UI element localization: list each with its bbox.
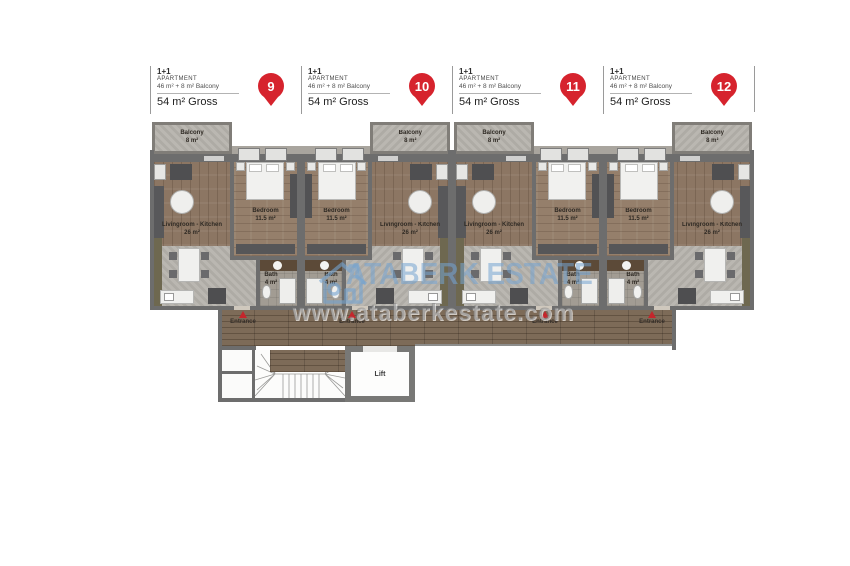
wall: [301, 154, 305, 310]
nightstand: [307, 162, 316, 171]
lift-label: Lift: [375, 371, 386, 378]
window: [342, 148, 364, 161]
window: [540, 148, 562, 161]
kitchen-sink: [730, 293, 740, 301]
chair: [727, 252, 735, 260]
wall: [750, 150, 754, 310]
window: [238, 148, 260, 161]
pillow: [266, 164, 279, 172]
nightstand: [286, 162, 295, 171]
entrance-label-12: Entrance: [632, 311, 672, 325]
wall: [415, 344, 672, 346]
balcony: Balcony 8 m²: [370, 122, 450, 154]
tv-unit: [236, 244, 295, 254]
pillow: [625, 164, 638, 172]
lift-door: [363, 346, 397, 352]
balcony: Balcony 8 m²: [152, 122, 232, 154]
wall: [222, 371, 252, 374]
window: [265, 148, 287, 161]
entrance-label-9: Entrance: [223, 311, 263, 325]
chair: [695, 270, 703, 278]
coffee-table: [408, 190, 432, 214]
balcony: Balcony 8 m²: [454, 122, 534, 154]
nightstand: [538, 162, 547, 171]
chair: [201, 270, 209, 278]
bathroom-label: Bath 4 m²: [256, 272, 286, 288]
washbasin: [622, 261, 631, 270]
entrance-text: Entrance: [223, 319, 263, 325]
pillow: [249, 164, 262, 172]
floor-plan-page: 1+1 APARTMENT 46 m² + 8 m² Balcony 54 m²…: [0, 0, 850, 566]
window: [315, 148, 337, 161]
balcony-label: Balcony 8 m²: [398, 130, 421, 146]
bedroom-label: Bedroom 11.5 m²: [536, 208, 599, 224]
stair-landing: [270, 350, 345, 372]
nightstand: [236, 162, 245, 171]
coffee-table: [710, 190, 734, 214]
entrance-text: Entrance: [632, 319, 672, 325]
tv-unit: [538, 244, 597, 254]
nightstand: [588, 162, 597, 171]
shaft-room: [222, 350, 252, 398]
balcony: Balcony 8 m²: [672, 122, 752, 154]
coffee-table: [472, 190, 496, 214]
chair: [169, 270, 177, 278]
tv-unit: [307, 244, 366, 254]
chair: [169, 252, 177, 260]
washbasin: [273, 261, 282, 270]
chair: [695, 252, 703, 260]
armchair: [410, 164, 432, 180]
window: [644, 148, 666, 161]
window: [567, 148, 589, 161]
wall: [603, 154, 607, 310]
chair: [201, 252, 209, 260]
balcony-door: [378, 156, 398, 161]
watermark-url: www.ataberkestate.com: [292, 299, 574, 326]
chair: [727, 270, 735, 278]
bedroom-label: Bedroom 11.5 m²: [305, 208, 368, 224]
bathroom-label: Bath 4 m²: [618, 272, 648, 288]
apartment-unit-12: Balcony 8 m²: [603, 120, 754, 310]
cabinet: [738, 164, 750, 180]
dining-table: [178, 248, 200, 282]
pillow: [323, 164, 336, 172]
living-room-label: Livingroom - Kitchen 26 m²: [154, 222, 230, 238]
balcony-label: Balcony 8 m²: [482, 130, 505, 146]
entrance-arrow-icon: [239, 311, 247, 318]
kitchen-appliance: [678, 288, 696, 304]
cabinet: [456, 164, 468, 180]
nightstand: [357, 162, 366, 171]
tv-unit: [609, 244, 668, 254]
balcony-label: Balcony 8 m²: [180, 130, 203, 146]
lift-room: Lift: [351, 352, 409, 396]
kitchen-appliance: [208, 288, 226, 304]
window: [617, 148, 639, 161]
bedroom-label: Bedroom 11.5 m²: [607, 208, 670, 224]
pillow: [568, 164, 581, 172]
dining-table: [704, 248, 726, 282]
armchair: [472, 164, 494, 180]
nightstand: [659, 162, 668, 171]
balcony-door: [204, 156, 224, 161]
nightstand: [609, 162, 618, 171]
wall: [670, 162, 674, 260]
bedroom-label: Bedroom 11.5 m²: [234, 208, 297, 224]
cabinet: [154, 164, 166, 180]
apartment-unit-9: Balcony 8 m²: [150, 120, 301, 310]
cabinet: [436, 164, 448, 180]
living-room-label: Livingroom - Kitchen 26 m²: [456, 222, 532, 238]
entrance-arrow-icon: [648, 311, 656, 318]
armchair: [170, 164, 192, 180]
pillow: [642, 164, 655, 172]
balcony-label: Balcony 8 m²: [700, 130, 723, 146]
pillow: [340, 164, 353, 172]
balcony-door: [506, 156, 526, 161]
living-room-label: Livingroom - Kitchen 26 m²: [674, 222, 750, 238]
wall: [368, 162, 372, 260]
watermark-brand: ATABERK ESTATE: [346, 257, 593, 292]
balcony-door: [680, 156, 700, 161]
coffee-table: [170, 190, 194, 214]
pillow: [551, 164, 564, 172]
living-room-label: Livingroom - Kitchen 26 m²: [372, 222, 448, 238]
wall: [218, 310, 222, 346]
wall: [672, 310, 676, 350]
armchair: [712, 164, 734, 180]
kitchen-sink: [164, 293, 174, 301]
